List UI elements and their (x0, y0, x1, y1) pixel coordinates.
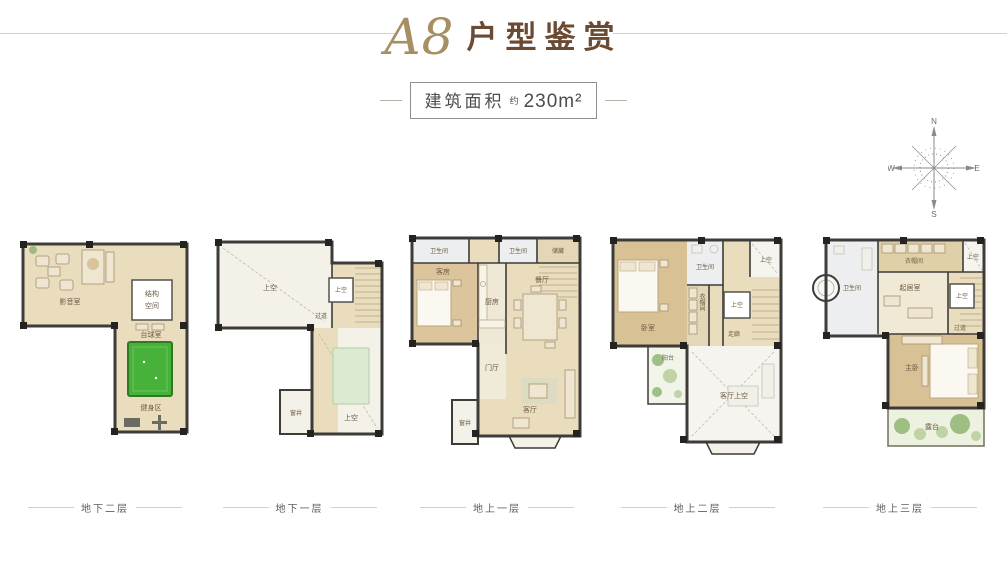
bay-window (706, 442, 760, 454)
room-label-bathroom: 卫生间 (695, 263, 713, 271)
floorplan-floor-1: 卫生间 卫生间 储藏 客房 厨房 餐厅 门厅 窗井 客厅 (409, 234, 585, 456)
caption-floor-1: 地上一层 (409, 500, 585, 515)
floorplan-floor-2: 上空 (610, 236, 786, 456)
plans-row: 结构 空间 影音室 台球室 健身区 (20, 234, 990, 458)
area-banner: 建筑面积 约 230m² (0, 82, 1007, 119)
caption-floor-2: 地上二层 (610, 500, 786, 515)
room-label-bath2: 卫生间 (509, 247, 527, 255)
room-label-closet: 衣帽间 (698, 292, 705, 312)
room-label-media: 影音室 (60, 297, 81, 306)
balcony (648, 346, 687, 404)
compass-rose-icon: N S W E (888, 116, 980, 218)
room-label-closet: 衣帽间 (905, 257, 923, 265)
area-tick-right (605, 100, 627, 101)
closet-wardrobes (882, 244, 945, 253)
room-label-void-bottom: 上空 (344, 413, 358, 422)
room-label-gym: 健身区 (141, 403, 162, 412)
room-label-bathroom: 卫生间 (843, 284, 861, 292)
room-label-stair-void: 上空 (730, 301, 742, 309)
caption-basement-1: 地下一层 (215, 500, 385, 515)
floorplan-sheet: A8户型鉴赏 建筑面积 约 230m² N S W E (0, 0, 1007, 566)
room-label-family: 起居室 (900, 283, 921, 292)
compass-e-label: E (974, 164, 979, 173)
room-label-structure-1: 结构 (145, 289, 159, 298)
caption-label: 地上一层 (473, 500, 521, 515)
room-label-corner-void: 上空 (759, 256, 771, 264)
room-label-corner-void: 上空 (967, 253, 979, 261)
room-label-corridor: 走廊 (727, 330, 739, 338)
room-label-stair-void: 上空 (956, 292, 968, 300)
area-label: 建筑面积 (425, 87, 505, 112)
caption-basement-2: 地下二层 (20, 500, 190, 515)
plant-icon (29, 246, 37, 254)
room-label-guest: 客房 (436, 267, 450, 276)
room-label-storage: 储藏 (552, 247, 564, 255)
room-label-balcony: 阳台 (661, 354, 673, 362)
compass-n-label: N (931, 117, 937, 126)
page-title: A8户型鉴赏 (0, 8, 1007, 66)
b2-floor (23, 244, 187, 432)
room-label-foyer: 门厅 (485, 363, 499, 372)
room-label-master: 主卧 (905, 363, 919, 372)
room-label-structure-2: 空间 (145, 301, 159, 310)
room-label-bedroom: 卧室 (641, 323, 655, 332)
caption-label: 地下一层 (276, 500, 324, 515)
area-approx: 约 (510, 94, 519, 107)
area-value: 230m² (524, 91, 583, 113)
room-label-window-well: 窗井 (289, 409, 301, 417)
caption-floor-3: 地上三层 (810, 500, 990, 515)
console-cabinet (82, 250, 114, 284)
floorplan-floor-3: 上空 衣帽间 (810, 236, 990, 458)
bay-window (509, 436, 561, 448)
area-box: 建筑面积 约 230m² (410, 82, 598, 119)
room-label-billiards: 台球室 (141, 330, 162, 339)
stair-void-box: 上空 (329, 278, 353, 302)
room-label-terrace: 露台 (925, 422, 939, 431)
area-tick-left (380, 100, 402, 101)
compass-w-label: W (888, 164, 895, 173)
compass-s-label: S (931, 210, 936, 218)
room-label-corridor: 过道 (314, 312, 326, 320)
room-label-dining: 餐厅 (535, 275, 549, 284)
stair-void-box: 上空 (950, 284, 974, 308)
captions-row: 地下二层 地下一层 地上一层 地上二层 地上三层 (20, 500, 990, 515)
room-label-corridor: 过道 (954, 324, 966, 332)
stair-void-box: 上空 (724, 292, 750, 318)
pool-table (128, 342, 172, 396)
room-label-window-well: 窗井 (459, 419, 471, 427)
pool-table-ghost (333, 348, 369, 404)
floorplan-basement-1: 上空 上空 过道 上空 窗井 (215, 234, 385, 438)
room-label-living: 客厅 (523, 405, 537, 414)
unit-code: A8 (385, 8, 455, 66)
caption-label: 地下二层 (81, 500, 129, 515)
title-text: 户型鉴赏 (466, 20, 622, 55)
caption-label: 地上二层 (674, 500, 722, 515)
room-label-kitchen: 厨房 (485, 297, 499, 306)
room-label-stair-void: 上空 (334, 286, 346, 294)
floorplan-basement-2: 结构 空间 影音室 台球室 健身区 (20, 234, 190, 436)
caption-label: 地上三层 (876, 500, 924, 515)
room-label-bath1: 卫生间 (430, 247, 448, 255)
room-label-void-top: 上空 (263, 283, 277, 292)
room-label-living-void: 客厅上空 (720, 391, 748, 400)
